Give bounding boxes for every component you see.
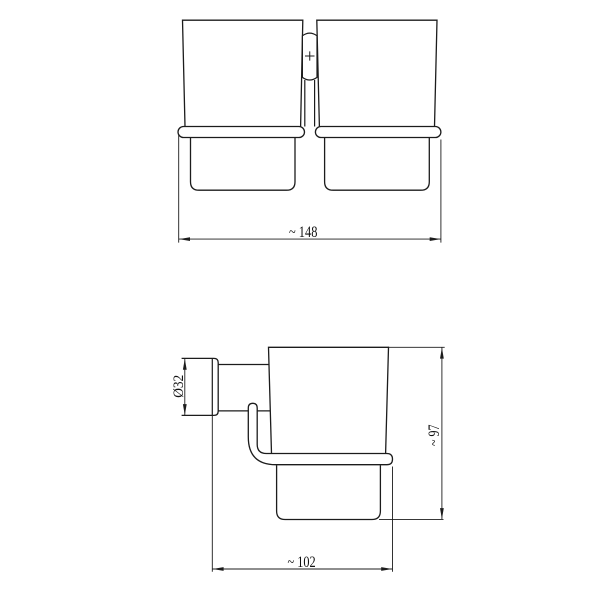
svg-text:~ 97: ~ 97	[426, 424, 443, 446]
svg-text:Ø32: Ø32	[171, 375, 187, 398]
svg-text:~ 102: ~ 102	[288, 554, 316, 571]
svg-text:~ 148: ~ 148	[289, 224, 318, 241]
